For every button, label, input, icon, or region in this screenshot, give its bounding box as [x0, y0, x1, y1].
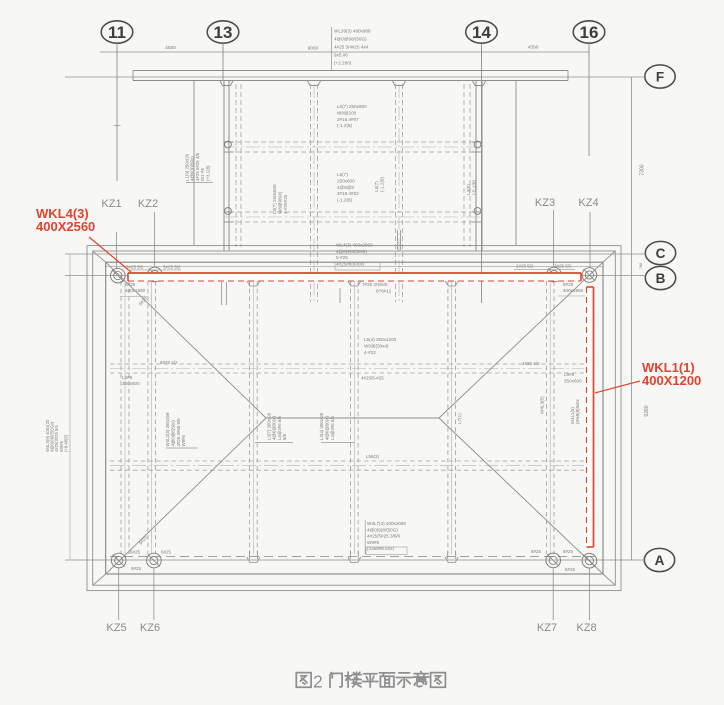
svg-text:7#25 2/5/6/6: 7#25 2/5/6/6 — [362, 282, 388, 287]
svg-text:W8@98(4): W8@98(4) — [278, 191, 283, 214]
svg-text:L7(1): L7(1) — [457, 413, 462, 424]
svg-text:WL39(3) 480x988: WL39(3) 480x988 — [334, 29, 371, 34]
svg-text:C: C — [656, 246, 666, 261]
svg-text:11: 11 — [108, 23, 126, 42]
svg-text:B: B — [656, 271, 666, 286]
svg-text:KZ7: KZ7 — [537, 622, 557, 634]
svg-text:KZ8: KZ8 — [576, 622, 596, 634]
svg-text:2#25 5/2: 2#25 5/2 — [516, 264, 534, 269]
svg-text:(+2.280): (+2.280) — [334, 61, 352, 66]
svg-text:L3(6): L3(6) — [466, 184, 471, 195]
svg-text:16: 16 — [580, 23, 599, 42]
svg-text:KZ4: KZ4 — [578, 197, 598, 209]
svg-text:4#25 3/4#25 4x4: 4#25 3/4#25 4x4 — [334, 45, 369, 50]
svg-text:W9#6: W9#6 — [367, 540, 379, 545]
svg-text:400X1200: 400X1200 — [642, 373, 701, 388]
svg-text:L5(7): L5(7) — [337, 172, 348, 177]
svg-text:W0@(50x4): W0@(50x4) — [364, 343, 389, 348]
svg-text:(-1.2(8): (-1.2(8) — [337, 198, 353, 203]
svg-text:4@0(9)8/(50G): 4@0(9)8/(50G) — [336, 249, 367, 254]
svg-text:13: 13 — [214, 23, 233, 42]
svg-text:3#25 5/2: 3#25 5/2 — [126, 265, 144, 270]
svg-text:W8@200: W8@200 — [337, 110, 357, 115]
svg-text:4-#25#25: 4-#25#25 — [283, 194, 288, 214]
svg-text:8?6#12: 8?6#12 — [376, 289, 392, 294]
svg-text:4@0@50(4): 4@0@50(4) — [324, 415, 329, 440]
svg-text:4#25 4/2: 4#25 4/2 — [522, 361, 540, 366]
svg-text:L6(7) 250x600: L6(7) 250x600 — [337, 104, 367, 109]
svg-text:WL4(3) 400x2560: WL4(3) 400x2560 — [336, 243, 373, 248]
svg-text:W4L2(3) 350x(58: W4L2(3) 350x(58 — [165, 412, 170, 446]
svg-text:400x1960: 400x1960 — [563, 288, 584, 293]
svg-text:4550: 4550 — [165, 45, 176, 51]
svg-text:L3(4) 300x(20: L3(4) 300x(20 — [319, 412, 324, 440]
svg-text:9060: 9060 — [308, 46, 319, 52]
svg-text:6#25: 6#25 — [130, 550, 141, 555]
svg-text:KZ5: KZ5 — [106, 622, 126, 634]
svg-text:9x5.#6: 9x5.#6 — [334, 53, 348, 58]
svg-text:4#25#8(600x): 4#25#8(600x) — [336, 261, 365, 266]
svg-text:400x1960: 400x1960 — [125, 288, 146, 293]
svg-text:3#25 5/2: 3#25 5/2 — [163, 265, 181, 270]
svg-text:4@0@8(50x): 4@0@8(50x) — [170, 420, 175, 447]
svg-text:L9#6: L9#6 — [564, 372, 575, 377]
svg-text:L4@3#6 5/5: L4@3#6 5/5 — [330, 415, 335, 440]
svg-text:7300: 7300 — [640, 164, 646, 175]
svg-text:5#25: 5#25 — [565, 567, 576, 572]
svg-text:5#25: 5#25 — [563, 282, 574, 287]
svg-text:350x600: 350x600 — [564, 378, 582, 383]
svg-text:4@8@8: 4@8@8 — [337, 185, 354, 190]
svg-text:5#25: 5#25 — [125, 282, 136, 287]
svg-text:6#25 4/2: 6#25 4/2 — [160, 360, 178, 365]
svg-text:4-#22: 4-#22 — [364, 350, 376, 355]
svg-text:A: A — [655, 553, 665, 568]
svg-text:KZ3: KZ3 — [535, 197, 555, 209]
svg-text:(+8.48(8): (+8.48(8) — [63, 434, 68, 452]
svg-text:(-1.2(8): (-1.2(8) — [380, 176, 385, 192]
svg-text:(+3.1(8): (+3.1(8) — [205, 165, 210, 181]
svg-text:(-1.2(8): (-1.2(8) — [337, 123, 353, 128]
svg-text:2#16.4#02: 2#16.4#02 — [337, 191, 359, 196]
svg-text:L56(3): L56(3) — [366, 454, 380, 459]
svg-text:4550: 4550 — [528, 45, 539, 51]
svg-text:3#25 5/2: 3#25 5/2 — [554, 264, 572, 269]
svg-text:L4#6: L4#6 — [122, 375, 133, 380]
svg-text:4@0(9)8/(50G): 4@0(9)8/(50G) — [367, 527, 398, 532]
svg-text:250x600: 250x600 — [337, 178, 355, 183]
svg-text:6#25: 6#25 — [161, 550, 172, 555]
svg-text:4@0@98/(50G): 4@0@98/(50G) — [334, 37, 367, 42]
svg-text:5-#25: 5-#25 — [336, 255, 348, 260]
svg-text:L3(7): L3(7) — [374, 181, 379, 192]
svg-text:(-5.1(8): (-5.1(8) — [472, 179, 477, 195]
svg-text:KZ2: KZ2 — [138, 198, 158, 210]
svg-text:5#25: 5#25 — [131, 566, 142, 571]
svg-text:W9#6: W9#6 — [181, 434, 186, 446]
svg-text:KZ6: KZ6 — [140, 622, 160, 634]
svg-text:788: 788 — [639, 263, 643, 269]
svg-text:400X2560: 400X2560 — [36, 219, 95, 234]
svg-text:L5(4) 250x1200: L5(4) 250x1200 — [364, 337, 397, 342]
svg-text:6#25: 6#25 — [563, 549, 574, 554]
svg-text:350x600: 350x600 — [122, 381, 140, 386]
svg-text:6#25: 6#25 — [531, 549, 542, 554]
svg-text:F: F — [656, 69, 664, 84]
svg-text:4#25/5#25 3/6/6: 4#25/5#25 3/6/6 — [367, 534, 401, 539]
svg-text:2: 2 — [313, 671, 323, 691]
svg-text:W4L3(5): W4L3(5) — [540, 396, 545, 414]
svg-text:KZ1: KZ1 — [101, 198, 121, 210]
svg-text:2#16.4#07: 2#16.4#07 — [337, 117, 359, 122]
svg-text:4#25/5-#25: 4#25/5-#25 — [361, 376, 384, 381]
svg-text:4#25 3#65 5/5: 4#25 3#65 5/5 — [176, 418, 181, 447]
svg-text:5/5: 5/5 — [282, 433, 287, 440]
svg-text:9280: 9280 — [644, 405, 650, 416]
svg-text:(8%8(8)9x0x: (8%8(8)9x0x — [575, 398, 580, 424]
svg-text:W4L7(3) 400x2060: W4L7(3) 400x2060 — [367, 521, 407, 526]
svg-text:14: 14 — [472, 23, 491, 42]
svg-text:L3(7) 250x600: L3(7) 250x600 — [272, 184, 277, 214]
